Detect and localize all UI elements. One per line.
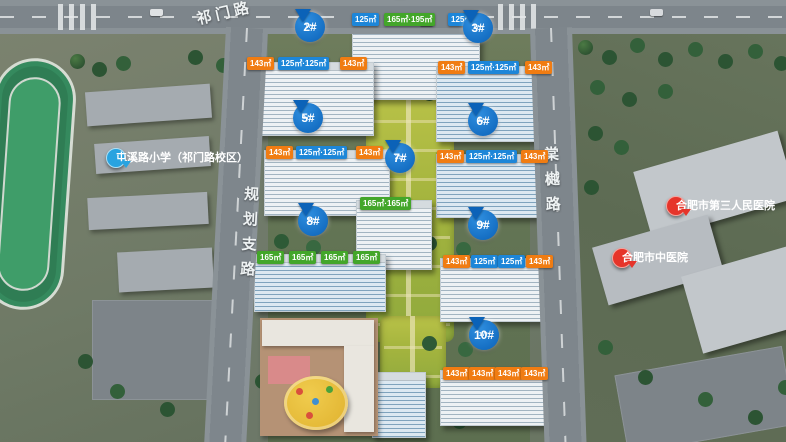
- canopy-dot: [296, 388, 303, 395]
- unit-label: 143㎡: [443, 255, 470, 268]
- unit-label: 165㎡: [257, 251, 284, 264]
- poi-school-bubble[interactable]: 屯溪路小学（祁门路校区）: [106, 148, 126, 168]
- unit-label: 143㎡: [340, 57, 367, 70]
- poi-hospital-2-bubble[interactable]: 合肥市中医院: [612, 248, 632, 268]
- school-building: [85, 84, 212, 127]
- unit-label: 143㎡: [521, 367, 548, 380]
- unit-label: 125㎡·125㎡: [296, 146, 347, 159]
- poi-hospital-2-label: 合肥市中医院: [622, 249, 688, 267]
- pin-tail: [295, 9, 311, 30]
- unit-label: 143㎡: [437, 150, 464, 163]
- canopy-dot: [312, 398, 319, 405]
- unit-label: 125㎡: [498, 255, 525, 268]
- unit-label: 143㎡: [356, 146, 383, 159]
- school-building: [87, 192, 209, 230]
- car: [650, 9, 663, 16]
- unit-label: 143㎡: [521, 150, 548, 163]
- canopy-dot: [326, 386, 333, 393]
- crosswalk: [58, 4, 100, 30]
- unit-label: 125㎡·125㎡: [278, 57, 329, 70]
- school-building: [117, 248, 214, 293]
- unit-label: 165㎡·165㎡: [360, 197, 411, 210]
- unit-label: 143㎡: [526, 255, 553, 268]
- unit-label: 125㎡·125㎡: [466, 150, 517, 163]
- kindergarten-roof: [262, 320, 374, 346]
- pin-tail: [468, 103, 484, 124]
- poi-hospital-1-label: 合肥市第三人民医院: [676, 197, 775, 215]
- unit-label: 143㎡: [266, 146, 293, 159]
- hospital-lot: [614, 346, 786, 442]
- unit-label: 125㎡: [471, 255, 498, 268]
- unit-label: 143㎡: [443, 367, 470, 380]
- site-plan-aerial: 祁门路 规划支路 棠樾路 125㎡ 165㎡·195㎡ 125㎡ 143㎡ 12…: [0, 0, 786, 442]
- canopy-dot: [306, 412, 313, 419]
- school-yard: [92, 300, 220, 400]
- unit-label: 143㎡: [525, 61, 552, 74]
- pin-tail: [293, 100, 309, 121]
- pin-tail: [385, 140, 401, 161]
- poi-hospital-1-bubble[interactable]: 合肥市第三人民医院: [666, 196, 686, 216]
- unit-label: 143㎡: [438, 61, 465, 74]
- kindergarten-roof: [344, 346, 374, 432]
- trees: [70, 54, 85, 69]
- tower-6: [436, 154, 546, 218]
- pin-tail: [469, 317, 485, 338]
- pin-tail: [463, 10, 479, 31]
- school-zone: [0, 34, 228, 442]
- low-rise-building: [372, 372, 426, 438]
- lane-markings: [550, 28, 567, 442]
- pin-tail: [468, 207, 484, 228]
- unit-label: 125㎡·125㎡: [468, 61, 519, 74]
- unit-label: 143㎡: [247, 57, 274, 70]
- running-track: [0, 55, 79, 312]
- unit-label: 143㎡: [495, 367, 522, 380]
- unit-label: 165㎡: [321, 251, 348, 264]
- poi-school-label: 屯溪路小学（祁门路校区）: [116, 149, 248, 167]
- pin-tail: [298, 203, 314, 224]
- unit-label: 165㎡·195㎡: [384, 13, 435, 26]
- unit-label: 125㎡: [352, 13, 379, 26]
- unit-label: 143㎡: [469, 367, 496, 380]
- unit-label: 165㎡: [353, 251, 380, 264]
- crosswalk: [498, 4, 540, 30]
- unit-label: 165㎡: [289, 251, 316, 264]
- hospital-zone: [570, 34, 786, 442]
- car: [150, 9, 163, 16]
- trees: [578, 40, 593, 55]
